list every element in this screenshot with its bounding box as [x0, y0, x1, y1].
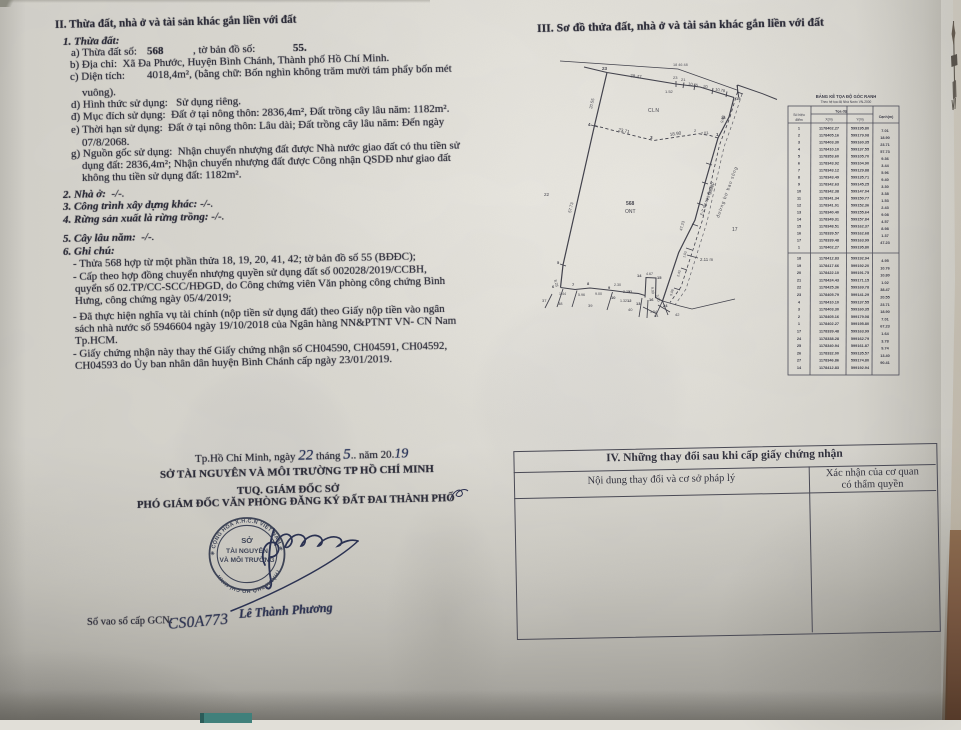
svg-text:1.52: 1.52: [665, 89, 674, 94]
svg-text:39: 39: [588, 303, 593, 308]
svg-text:19: 19: [736, 96, 741, 101]
svg-text:Y(m): Y(m): [856, 118, 863, 122]
svg-text:17: 17: [732, 227, 738, 233]
svg-text:28.47: 28.47: [630, 73, 643, 80]
svg-text:14: 14: [637, 273, 642, 278]
svg-text:BẢNG KÊ TỌA ĐỘ GÓC RANH: BẢNG KÊ TỌA ĐỘ GÓC RANH: [816, 94, 877, 99]
svg-text:Số hiệu: Số hiệu: [793, 113, 805, 117]
svg-text:12345678910111213141516171: 12345678910111213141516171: [797, 127, 802, 250]
svg-text:4.67: 4.67: [646, 272, 653, 276]
svg-text:ONT: ONT: [625, 209, 636, 215]
svg-text:7.01: 7.01: [700, 130, 709, 136]
svg-text:57.73: 57.73: [567, 201, 574, 213]
svg-text:23: 23: [602, 66, 608, 71]
svg-text:9.93: 9.93: [720, 115, 726, 123]
svg-text:điểm: điểm: [795, 118, 803, 122]
svg-text:9: 9: [608, 285, 611, 290]
svg-text:568: 568: [626, 201, 635, 207]
svg-text:9.08: 9.08: [669, 289, 675, 297]
svg-text:Cạnh(m): Cạnh(m): [879, 115, 894, 119]
svg-text:1: 1: [716, 132, 719, 137]
svg-text:1.32: 1.32: [620, 299, 627, 303]
svg-text:7.0118.9023.7157.739.363.445.9: 7.0118.9023.7157.739.363.445.969.403.303…: [880, 129, 890, 245]
svg-text:7: 7: [572, 282, 575, 287]
svg-text:44: 44: [654, 313, 659, 318]
svg-text:16: 16: [649, 297, 654, 302]
svg-text:47.23: 47.23: [678, 220, 686, 232]
svg-text:37: 37: [542, 298, 547, 303]
svg-text:3.30: 3.30: [655, 294, 661, 302]
svg-text:40: 40: [628, 307, 633, 312]
svg-text:42: 42: [675, 312, 680, 317]
svg-text:15: 15: [657, 275, 662, 280]
svg-text:38: 38: [558, 301, 563, 306]
svg-text:10: 10: [611, 295, 616, 300]
svg-text:1819202122234321172425262714: 1819202122234321172425262714: [797, 257, 802, 371]
svg-text:Tọa độ: Tọa độ: [835, 110, 848, 114]
svg-text:20: 20: [703, 84, 709, 90]
svg-text:2: 2: [694, 128, 697, 133]
svg-text:2.43: 2.43: [676, 270, 682, 278]
svg-text:2.11 m: 2.11 m: [700, 257, 713, 262]
svg-text:10.65: 10.65: [688, 81, 699, 88]
svg-text:2.30: 2.30: [614, 283, 621, 287]
svg-text:Theo hệ tọa độ Nhà Nước VN-200: Theo hệ tọa độ Nhà Nước VN-2000: [821, 100, 872, 104]
svg-text:22: 22: [544, 192, 550, 197]
svg-text:21: 21: [681, 77, 686, 82]
svg-text:CLN: CLN: [648, 108, 660, 114]
svg-text:23: 23: [673, 75, 678, 80]
svg-text:1.53: 1.53: [682, 251, 688, 259]
svg-text:599195.80599179.08599160.35599: 599195.80599179.08599160.35599137.555991…: [851, 127, 870, 250]
svg-text:1178402.271178405.161178403.30: 1178402.271178405.161178403.301178410.10…: [819, 127, 840, 250]
svg-text:1.44: 1.44: [559, 292, 566, 296]
svg-text:18.90: 18.90: [669, 130, 682, 137]
svg-text:18 46 48: 18 46 48: [673, 63, 688, 67]
svg-text:599192.94599192.20599191.75599: 599192.94599192.20599191.75599171.155991…: [851, 257, 870, 371]
svg-text:X(m): X(m): [825, 118, 832, 122]
svg-text:5.96: 5.96: [578, 293, 585, 297]
svg-text:4.9510.7610.801.0238.4720.5523: 4.9510.7610.801.0238.4720.5523.7118.907.…: [880, 259, 890, 365]
svg-text:12: 12: [627, 298, 632, 303]
svg-text:1178412.831178417.661178422.10: 1178412.831178417.661178422.101178424.43…: [819, 257, 840, 371]
svg-text:3: 3: [650, 135, 653, 140]
svg-text:20.55: 20.55: [588, 97, 595, 109]
svg-text:9.09: 9.09: [650, 287, 655, 294]
svg-text:đường liên ấp 2-3: đường liên ấp 2-3: [699, 182, 716, 217]
svg-text:5: 5: [557, 260, 560, 265]
svg-text:9.00: 9.00: [595, 292, 602, 296]
svg-text:24: 24: [663, 303, 668, 308]
svg-text:4: 4: [588, 122, 591, 127]
svg-text:13: 13: [636, 301, 641, 306]
svg-text:đường bờ bao sông: đường bờ bao sông: [715, 166, 738, 219]
svg-text:8: 8: [587, 281, 590, 286]
